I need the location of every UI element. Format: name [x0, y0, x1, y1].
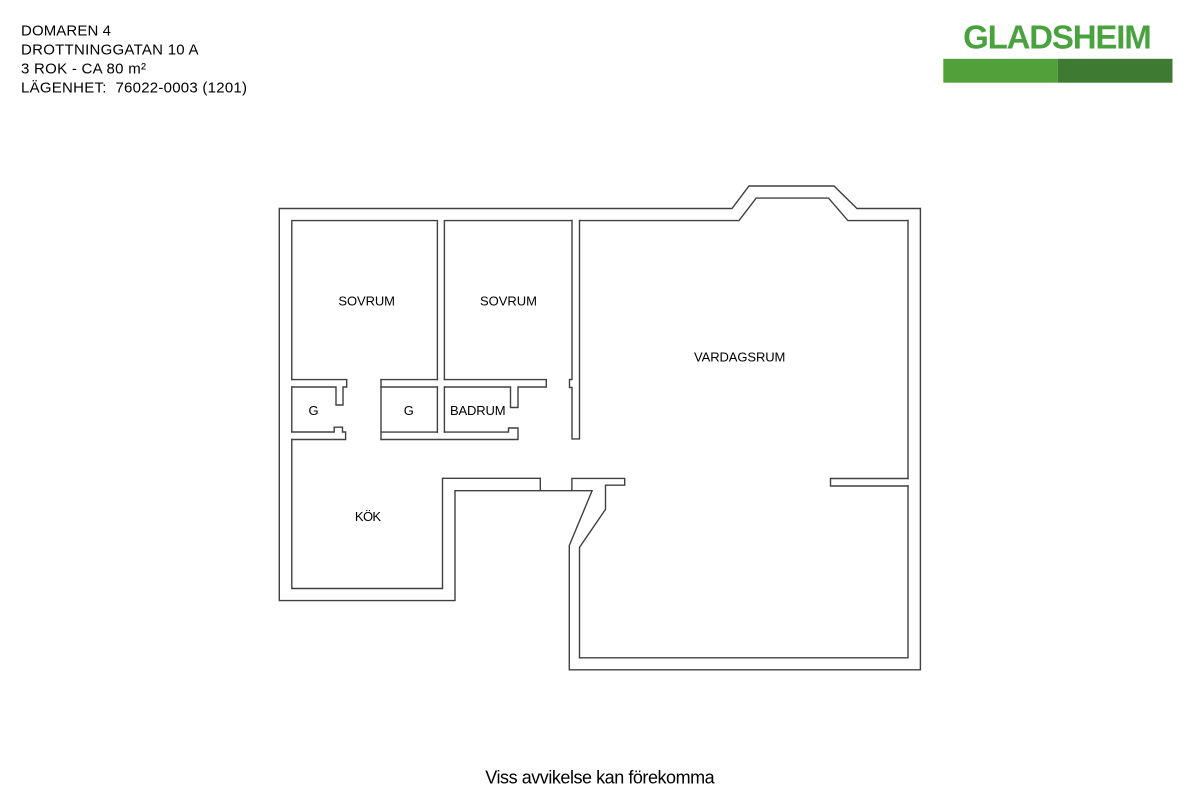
svg-text:SOVRUM: SOVRUM [338, 293, 395, 308]
svg-text:DROTTNINGGATAN 10 A: DROTTNINGGATAN 10 A [21, 42, 199, 59]
svg-text:G: G [308, 403, 318, 418]
svg-text:DOMAREN 4: DOMAREN 4 [21, 23, 111, 40]
svg-text:Viss avvikelse kan förekomma: Viss avvikelse kan förekomma [485, 767, 715, 787]
svg-text:VARDAGSRUM: VARDAGSRUM [694, 349, 785, 364]
svg-text:3 ROK - CA 80 m²: 3 ROK - CA 80 m² [21, 61, 146, 78]
svg-text:GLADSHEIM: GLADSHEIM [963, 18, 1152, 55]
svg-text:G: G [404, 403, 414, 418]
svg-text:LÄGENHET: 76022-0003 (1201): LÄGENHET: 76022-0003 (1201) [21, 80, 247, 97]
svg-text:KÖK: KÖK [355, 509, 382, 524]
svg-text:SOVRUM: SOVRUM [480, 293, 537, 308]
svg-text:BADRUM: BADRUM [450, 403, 506, 418]
